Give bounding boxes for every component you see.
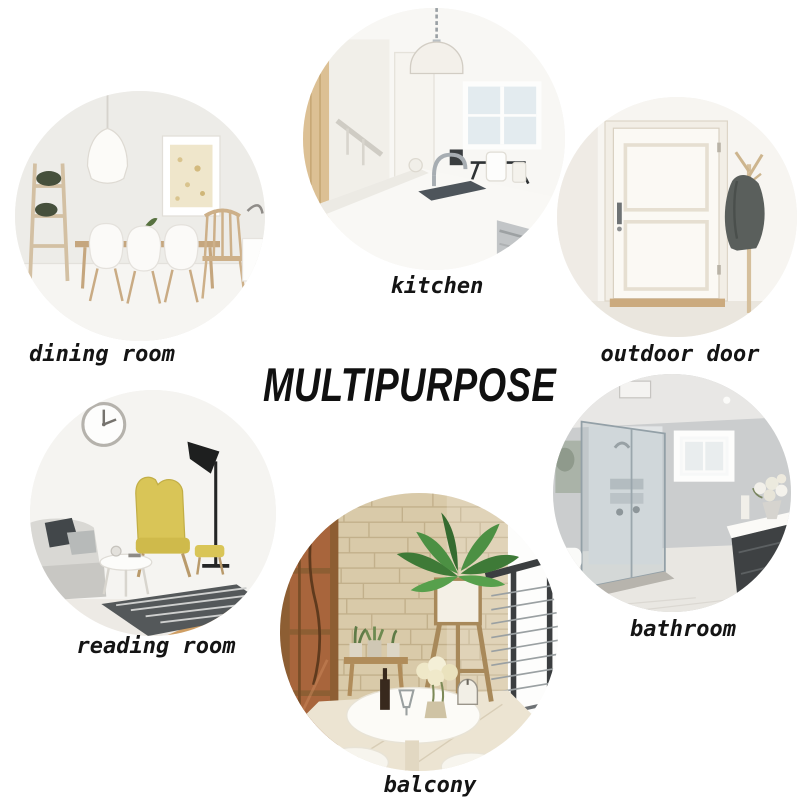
- wall-art: [163, 136, 221, 216]
- kitchen-label: kitchen: [391, 274, 484, 300]
- outdoor-door-label: outdoor door: [601, 342, 760, 368]
- dining-room-scene: [15, 91, 265, 341]
- reading-room-scene: [30, 390, 276, 636]
- door-handle: [617, 203, 622, 225]
- ottoman: [195, 545, 225, 557]
- balcony-label: balcony: [384, 773, 477, 799]
- kitchen-photo: [303, 8, 565, 270]
- dishwasher: [497, 220, 565, 270]
- balcony-photo: [280, 493, 558, 771]
- outdoor-door-photo: [557, 97, 797, 337]
- vanity: [727, 512, 791, 610]
- reading-room-photo: [30, 390, 276, 636]
- balcony-scene: [280, 493, 558, 771]
- kitchen-scene: [303, 8, 565, 270]
- threshold: [610, 299, 725, 307]
- multipurpose-collage: MULTIPURPOSE dining room kitchen outdoor…: [0, 0, 800, 800]
- hanging-jacket: [725, 175, 765, 251]
- dining-room-label: dining room: [29, 342, 175, 368]
- kitchen-window: [465, 84, 538, 147]
- bathtub-edge: [553, 548, 582, 569]
- kettle: [486, 152, 506, 181]
- collage-title: MULTIPURPOSE: [263, 361, 556, 408]
- reading-room-label: reading room: [77, 634, 236, 660]
- bathroom-photo: [553, 374, 791, 612]
- wall-clock: [83, 404, 125, 446]
- shower-enclosure: [582, 422, 675, 598]
- dining-room-photo: [15, 91, 265, 341]
- bathroom-label: bathroom: [630, 617, 736, 643]
- bathroom-window: [677, 434, 732, 479]
- outdoor-door-scene: [557, 97, 797, 337]
- entry-door: [605, 121, 727, 301]
- wood-pantry: [303, 34, 329, 231]
- ceiling-vent: [620, 381, 651, 398]
- bathroom-scene: [553, 374, 791, 612]
